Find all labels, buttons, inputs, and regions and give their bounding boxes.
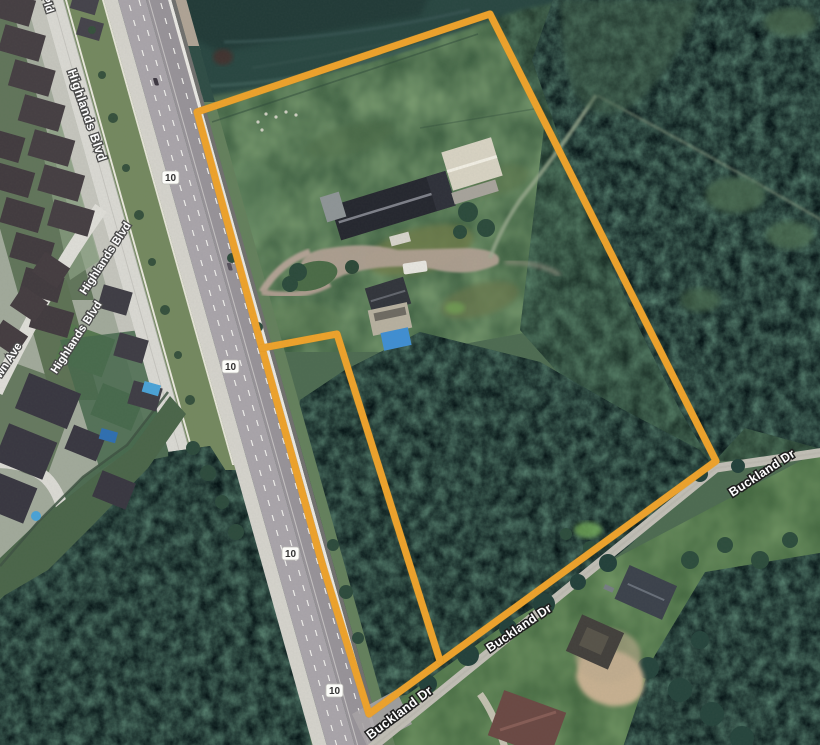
svg-text:10: 10	[285, 549, 297, 560]
svg-text:10: 10	[225, 362, 237, 373]
svg-text:10: 10	[165, 173, 177, 184]
svg-text:10: 10	[329, 686, 341, 697]
